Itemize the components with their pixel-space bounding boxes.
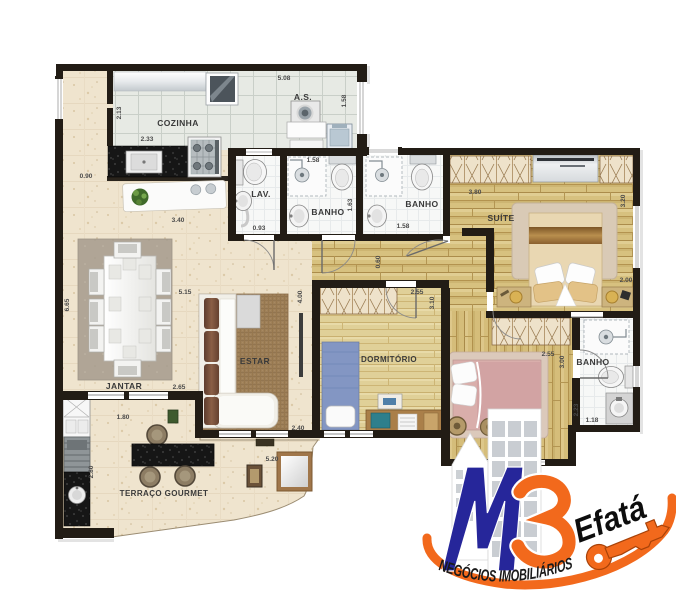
svg-text:BANHO: BANHO	[405, 199, 438, 209]
svg-text:2.65: 2.65	[173, 384, 186, 391]
svg-text:2.33: 2.33	[141, 136, 154, 143]
svg-text:1.80: 1.80	[117, 414, 130, 421]
svg-text:0.60: 0.60	[375, 255, 382, 268]
svg-text:2.13: 2.13	[116, 106, 123, 119]
svg-text:BANHO: BANHO	[576, 357, 609, 367]
svg-text:2.80: 2.80	[88, 465, 95, 478]
svg-text:5.15: 5.15	[179, 289, 192, 296]
svg-text:1.58: 1.58	[341, 94, 348, 107]
svg-text:2.40: 2.40	[292, 425, 305, 432]
svg-text:SUÍTE: SUÍTE	[487, 213, 514, 223]
svg-text:2.00: 2.00	[620, 277, 633, 284]
svg-text:3.20: 3.20	[620, 194, 627, 207]
svg-text:COZINHA: COZINHA	[157, 118, 199, 128]
svg-text:LAV.: LAV.	[251, 189, 271, 199]
svg-text:5.20: 5.20	[266, 456, 279, 463]
svg-text:1.58: 1.58	[397, 223, 410, 230]
svg-text:3.40: 3.40	[172, 217, 185, 224]
svg-text:2.23: 2.23	[573, 403, 580, 416]
svg-text:2.55: 2.55	[411, 289, 424, 296]
svg-text:A.S.: A.S.	[294, 92, 312, 102]
svg-text:TERRAÇO GOURMET: TERRAÇO GOURMET	[120, 489, 209, 498]
svg-text:3.10: 3.10	[429, 296, 436, 309]
svg-text:0.93: 0.93	[253, 225, 266, 232]
svg-text:3.00: 3.00	[559, 355, 566, 368]
svg-text:6.65: 6.65	[64, 298, 71, 311]
svg-text:ESTAR: ESTAR	[240, 356, 270, 366]
svg-text:4.00: 4.00	[297, 290, 304, 303]
svg-text:1.18: 1.18	[586, 417, 599, 424]
svg-text:JANTAR: JANTAR	[106, 381, 142, 391]
svg-text:1.58: 1.58	[307, 157, 320, 164]
svg-text:0.90: 0.90	[80, 173, 93, 180]
svg-text:DORMITÓRIO: DORMITÓRIO	[361, 355, 417, 364]
svg-text:BANHO: BANHO	[311, 207, 344, 217]
svg-text:5.08: 5.08	[278, 75, 291, 82]
svg-text:2.55: 2.55	[542, 351, 555, 358]
svg-text:3.80: 3.80	[469, 189, 482, 196]
svg-text:1.63: 1.63	[347, 198, 354, 211]
